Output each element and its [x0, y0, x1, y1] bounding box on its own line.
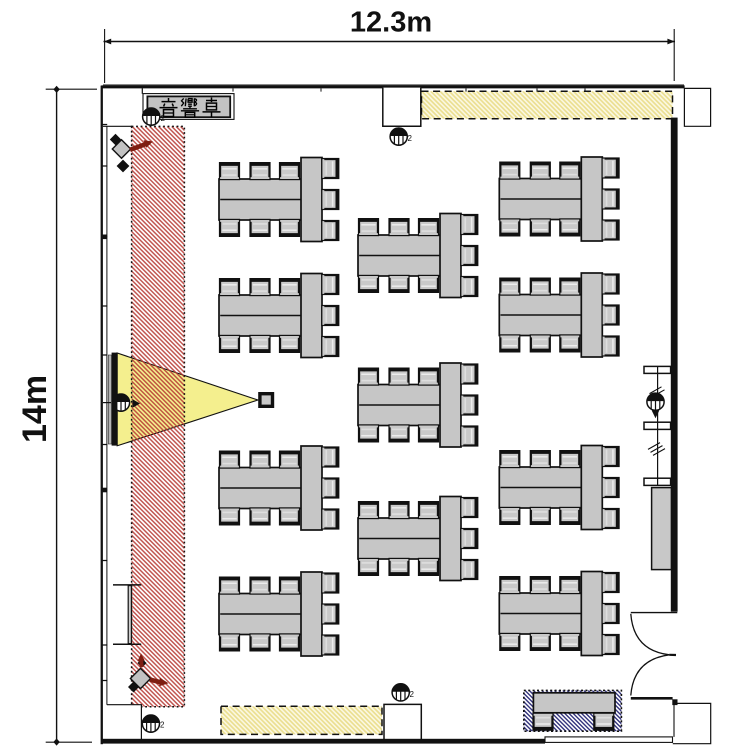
svg-text:14m: 14m [16, 375, 54, 443]
svg-text:2: 2 [161, 114, 166, 123]
svg-text:2: 2 [408, 134, 413, 143]
svg-text:12.3m: 12.3m [350, 7, 432, 39]
svg-text:2: 2 [410, 690, 415, 699]
svg-text:2: 2 [160, 721, 165, 730]
